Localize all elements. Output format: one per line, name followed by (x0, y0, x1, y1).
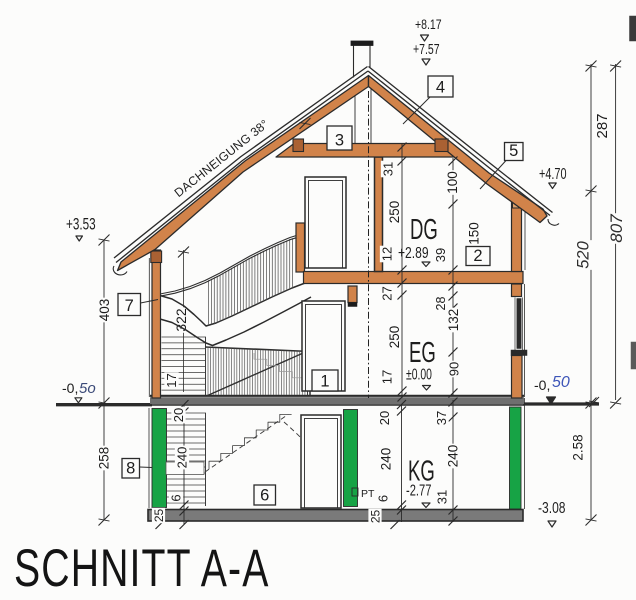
svg-text:+2.89: +2.89 (398, 244, 429, 262)
svg-text:258: 258 (96, 447, 111, 470)
svg-text:37: 37 (434, 411, 449, 425)
svg-text:100: 100 (445, 171, 460, 194)
svg-text:17: 17 (380, 370, 395, 384)
svg-text:PT: PT (361, 488, 375, 500)
svg-text:20: 20 (171, 408, 186, 422)
svg-text:50: 50 (552, 374, 570, 391)
svg-text:6: 6 (376, 495, 391, 502)
svg-text:7: 7 (125, 297, 134, 315)
svg-text:4: 4 (436, 79, 445, 97)
svg-text:5o: 5o (79, 380, 96, 397)
svg-text:807: 807 (607, 214, 626, 243)
svg-text:-0,: -0, (62, 380, 78, 396)
svg-text:240: 240 (445, 445, 460, 468)
svg-text:+7.57: +7.57 (413, 40, 440, 57)
svg-text:250: 250 (387, 326, 402, 349)
svg-text:20: 20 (377, 411, 392, 425)
svg-text:39: 39 (433, 248, 448, 262)
svg-text:250: 250 (387, 201, 402, 224)
svg-text:6: 6 (260, 487, 269, 505)
svg-text:17: 17 (164, 373, 179, 387)
svg-text:27: 27 (380, 286, 395, 300)
svg-text:12: 12 (380, 247, 395, 261)
svg-text:2: 2 (473, 247, 482, 265)
svg-text:-0,: -0, (534, 377, 550, 393)
svg-text:+4.70: +4.70 (539, 165, 567, 183)
svg-text:403: 403 (97, 299, 112, 322)
svg-text:±0.00: ±0.00 (406, 365, 432, 383)
svg-text:25: 25 (368, 510, 382, 524)
svg-text:3: 3 (335, 132, 344, 150)
svg-text:31: 31 (435, 490, 450, 504)
svg-text:240: 240 (378, 448, 393, 471)
svg-text:+3.53: +3.53 (66, 216, 96, 234)
svg-text:150: 150 (466, 222, 481, 245)
svg-text:132: 132 (446, 309, 461, 332)
svg-text:6: 6 (169, 494, 184, 501)
svg-text:240: 240 (175, 447, 190, 469)
svg-text:-3.08: -3.08 (538, 499, 566, 517)
svg-text:-2.77: -2.77 (406, 482, 431, 499)
svg-text:2.58: 2.58 (570, 434, 585, 460)
svg-text:5: 5 (509, 142, 518, 160)
svg-text:31: 31 (381, 162, 396, 176)
svg-text:DG: DG (410, 214, 438, 246)
svg-text:1: 1 (320, 373, 329, 391)
svg-text:8: 8 (126, 460, 135, 478)
svg-text:520: 520 (574, 240, 592, 268)
svg-text:90: 90 (447, 362, 462, 376)
svg-text:287: 287 (594, 113, 611, 138)
svg-text:25: 25 (152, 509, 166, 523)
svg-text:+8.17: +8.17 (415, 17, 442, 33)
svg-text:SCHNITT A-A: SCHNITT A-A (14, 538, 269, 597)
